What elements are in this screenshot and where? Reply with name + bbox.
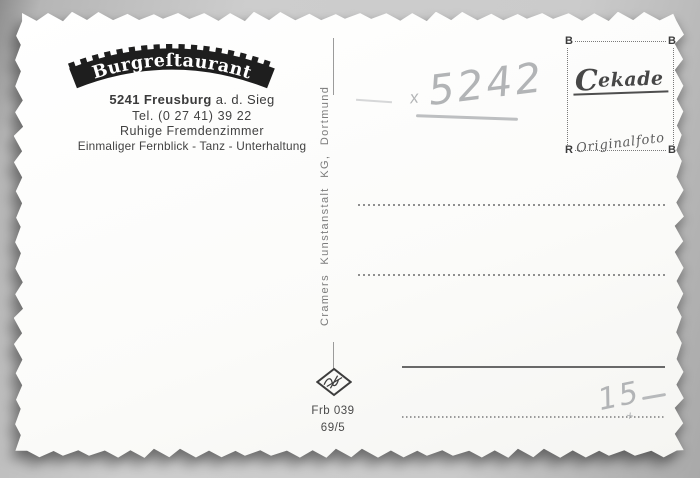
postcard-wrapper: Burgreſtaurant 5241 Freusburg a. d. Sieg…: [14, 12, 684, 458]
publisher-vertical-text: Cramers Kunstanstalt KG, Dortmund: [319, 110, 337, 326]
postal-code-town: 5241 Freusburg: [109, 92, 211, 107]
printer-diamond-logo-icon: [316, 367, 352, 397]
address-line-rule-2: [358, 274, 668, 276]
print-order-number: Frb 039: [283, 405, 383, 417]
phone-line: Tel. (0 27 41) 39 22: [42, 109, 342, 123]
cekade-brand: Cekade: [568, 68, 673, 94]
cekade-initial: C: [575, 63, 599, 98]
pencil-smudge-mark: [356, 99, 392, 104]
address-line-1: 5241 Freusburg a. d. Sieg: [42, 92, 342, 107]
divider-top-segment: [333, 38, 334, 95]
print-date-code: 69/5: [283, 422, 383, 434]
handwritten-photo-number: 5242: [426, 53, 547, 115]
amenities-line: Einmaliger Fernblick - Tanz - Unterhaltu…: [42, 139, 342, 153]
cekade-rest: ekade: [598, 67, 664, 91]
region-suffix: a. d. Sieg: [216, 92, 275, 107]
handwritten-price-dash: [642, 393, 666, 400]
rooms-line: Ruhige Fremdenzimmer: [42, 124, 342, 138]
handwritten-plus-mark: +: [625, 408, 635, 424]
establishment-address-block: 5241 Freusburg a. d. Sieg Tel. (0 27 41)…: [42, 92, 342, 153]
handwritten-price: 15: [595, 375, 644, 418]
handwritten-underline: [416, 114, 518, 120]
stamp-corner-mark-tl: B: [563, 36, 575, 47]
stamp-corner-mark-tr: B: [666, 36, 678, 47]
stamp-corner-mark-br: B: [666, 145, 678, 156]
burgrestaurant-logo: Burgreſtaurant: [66, 34, 278, 91]
stamp-box: B B R B Cekade Originalfoto: [567, 41, 674, 151]
originalfoto-label: Originalfoto: [567, 130, 673, 158]
divider-bottom-segment: [333, 342, 334, 369]
postcard-back: Burgreſtaurant 5241 Freusburg a. d. Sieg…: [14, 12, 684, 458]
address-line-rule-1: [358, 204, 668, 206]
address-line-rule-3-solid: [402, 366, 665, 368]
handwritten-x-mark: x: [409, 88, 420, 109]
